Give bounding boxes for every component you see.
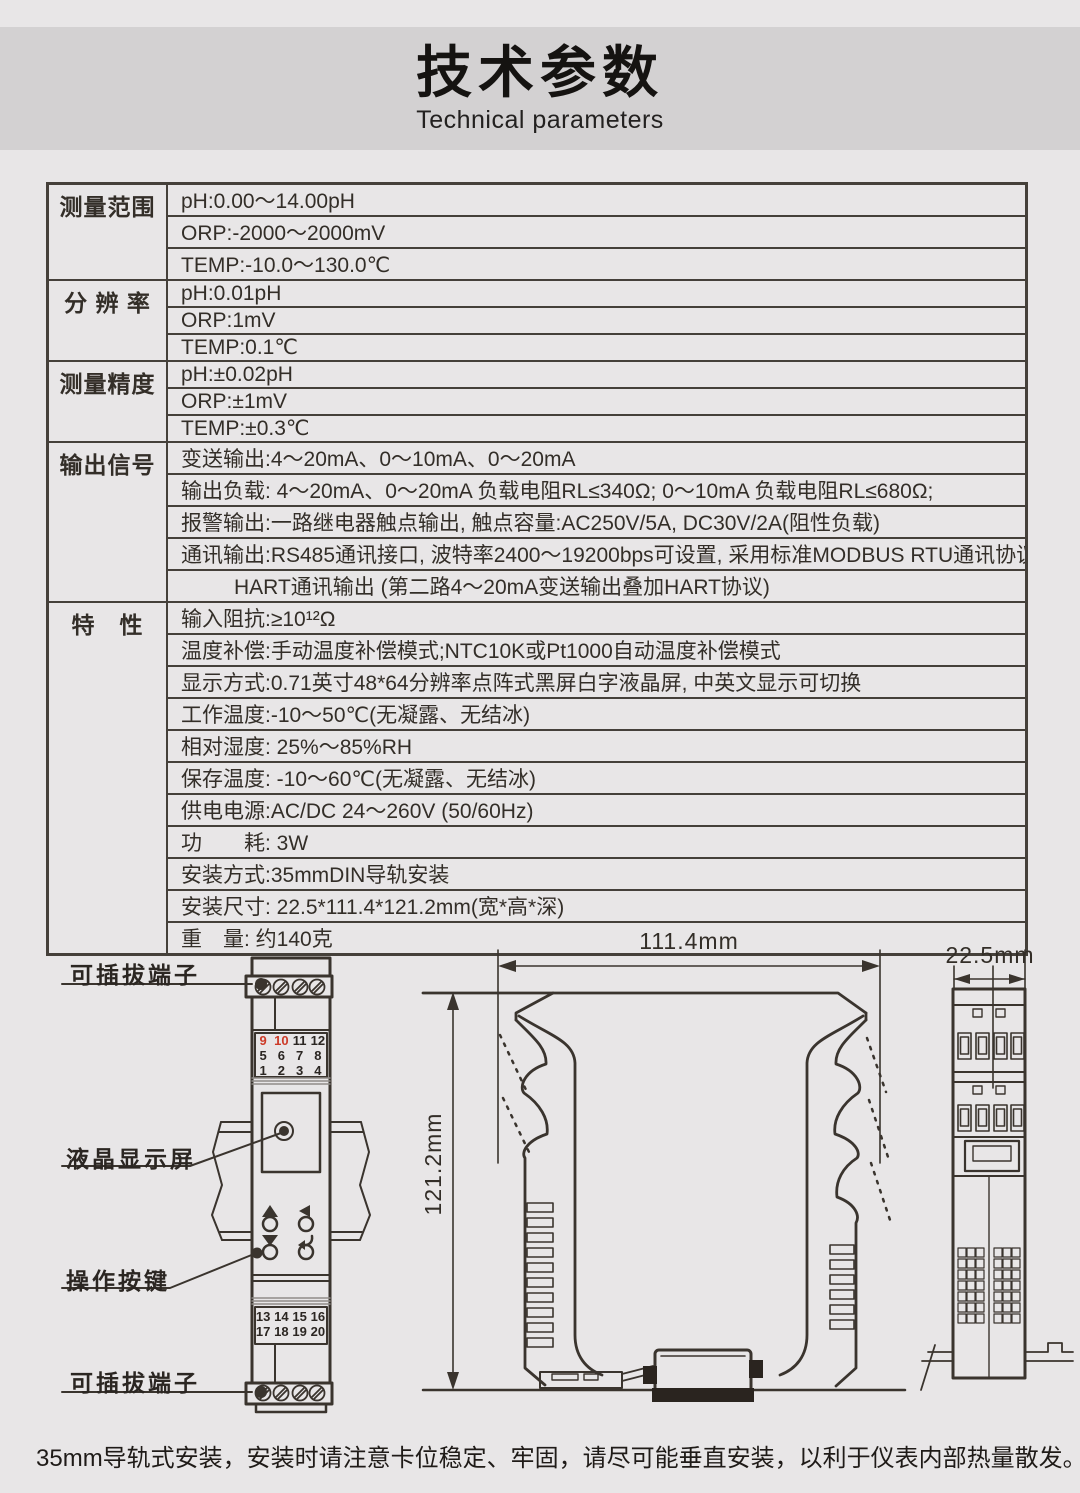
front-view-drawing: [62, 958, 370, 1412]
spec-group-label: 测量范围: [48, 184, 168, 281]
spec-row: ORP:-2000～2000mV: [48, 216, 1027, 248]
terminal-number: 14: [272, 1309, 290, 1324]
terminal-number: 8: [309, 1048, 327, 1063]
depth-dimension: 121.2mm: [420, 1078, 447, 1250]
spec-row: 安装尺寸: 22.5*111.4*121.2mm(宽*高*深): [48, 890, 1027, 922]
spec-value: 保存温度: -10～60℃(无凝露、无结冰): [167, 762, 1027, 794]
terminal-number: 17: [254, 1324, 272, 1339]
spec-value: 通讯输出:RS485通讯接口, 波特率2400～19200bps可设置, 采用标…: [167, 538, 1027, 570]
terminal-number: 12: [309, 1033, 327, 1048]
spec-row: 相对湿度: 25%～85%RH: [48, 730, 1027, 762]
spec-value: TEMP:-10.0～130.0℃: [167, 248, 1027, 280]
terminal-number: 4: [309, 1063, 327, 1078]
hatch-band: [252, 1298, 330, 1304]
right-scallop-edge: [835, 1020, 866, 1386]
spec-row: TEMP:-10.0～130.0℃: [48, 248, 1027, 280]
terminal-number: 20: [309, 1324, 327, 1339]
spec-row: 报警输出:一路继电器触点输出, 触点容量:AC250V/5A, DC30V/2A…: [48, 506, 1027, 538]
section-divider: [252, 997, 330, 1030]
bottom-cap: [256, 1404, 326, 1412]
terminal-number: 13: [254, 1309, 272, 1324]
spec-value: 输出负载: 4～20mA、0～20mA 负载电阻RL≤340Ω; 0～10mA …: [167, 474, 1027, 506]
spec-row: 显示方式:0.71英寸48*64分辨率点阵式黑屏白字液晶屏, 中英文显示可切换: [48, 666, 1027, 698]
terminal-number: 9: [254, 1033, 272, 1048]
spec-value: ORP:±1mV: [167, 388, 1027, 415]
spec-value: 安装尺寸: 22.5*111.4*121.2mm(宽*高*深): [167, 890, 1027, 922]
enter-button: [299, 1245, 313, 1259]
spec-row: TEMP:0.1℃: [48, 334, 1027, 361]
spec-row: 通讯输出:RS485通讯接口, 波特率2400～19200bps可设置, 采用标…: [48, 538, 1027, 570]
spec-row: 供电电源:AC/DC 24～260V (50/60Hz): [48, 794, 1027, 826]
top-cap: [252, 958, 330, 976]
din-rail-left: [212, 1122, 252, 1240]
spec-value: 相对湿度: 25%～85%RH: [167, 730, 1027, 762]
terminal-number: 19: [291, 1324, 309, 1339]
end-view-drawing: [921, 950, 1073, 1390]
width-dimension: 111.4mm: [629, 928, 749, 955]
arrowhead: [954, 974, 970, 984]
spec-row: 工作温度:-10～50℃(无凝露、无结冰): [48, 698, 1027, 730]
terminal-windows-row2: [958, 1105, 1024, 1131]
terminal-numbers-top: 910111256781234: [254, 1033, 327, 1078]
spec-value: ORP:-2000～2000mV: [167, 216, 1027, 248]
terminal-numbers-bottom: 1314151617181920: [254, 1309, 327, 1339]
spec-value: pH:0.01pH: [167, 280, 1027, 307]
terminal-number: 2: [272, 1063, 290, 1078]
spec-value: 温度补偿:手动温度补偿模式;NTC10K或Pt1000自动温度补偿模式: [167, 634, 1027, 666]
din-clip: [643, 1350, 763, 1402]
terminal-number: 1: [254, 1063, 272, 1078]
left-button: [299, 1217, 313, 1231]
spec-group-label: 分 辨 率: [48, 280, 168, 361]
spec-value: 功 耗: 3W: [167, 826, 1027, 858]
spec-row: 温度补偿:手动温度补偿模式;NTC10K或Pt1000自动温度补偿模式: [48, 634, 1027, 666]
terminal-number: 6: [272, 1048, 290, 1063]
spec-table: 测量范围pH:0.00～14.00pHORP:-2000～2000mVTEMP:…: [46, 182, 1028, 956]
spec-row: ORP:±1mV: [48, 388, 1027, 415]
terminal-number: 15: [291, 1309, 309, 1324]
spec-row: 安装方式:35mmDIN导轨安装: [48, 858, 1027, 890]
din-rail-right: [330, 1122, 370, 1240]
spec-row: 保存温度: -10～60℃(无凝露、无结冰): [48, 762, 1027, 794]
page-title: 技术参数: [416, 42, 664, 104]
lcd-dot-core: [279, 1126, 289, 1136]
technical-drawings: [0, 920, 1080, 1430]
spec-value: pH:±0.02pH: [167, 361, 1027, 388]
up-arrow-icon: [262, 1205, 278, 1217]
terminal-number: 11: [291, 1033, 309, 1048]
label-lcd: 液晶显示屏: [66, 1140, 196, 1174]
spec-row: 特 性输入阻抗:≥10¹²Ω: [48, 602, 1027, 634]
operation-buttons: [262, 1205, 313, 1259]
spec-value: TEMP:±0.3℃: [167, 415, 1027, 442]
hatch-band: [252, 1078, 330, 1084]
terminal-number: 10: [272, 1033, 290, 1048]
arrowhead: [498, 960, 516, 972]
extension-lines: [498, 950, 880, 1163]
spec-value: pH:0.00～14.00pH: [167, 184, 1027, 217]
left-arrow-icon: [299, 1205, 310, 1217]
title-band: 技术参数 Technical parameters: [0, 27, 1080, 150]
spec-group-label: 输出信号: [48, 442, 168, 602]
spec-row: 输出负载: 4～20mA、0～20mA 负载电阻RL≤340Ω; 0～10mA …: [48, 474, 1027, 506]
spec-value: HART通讯输出 (第二路4～20mA变送输出叠加HART协议): [167, 570, 1027, 602]
terminal-windows-row1: [958, 1033, 1024, 1059]
terminal-number: 18: [272, 1324, 290, 1339]
top-edge: [423, 993, 866, 1013]
label-buttons: 操作按键: [66, 1262, 170, 1296]
end-width-dimension: 22.5mm: [940, 942, 1040, 969]
spec-group-label: 测量精度: [48, 361, 168, 442]
terminal-number: 7: [291, 1048, 309, 1063]
spec-row: 输出信号变送输出:4～20mA、0～10mA、0～20mA: [48, 442, 1027, 474]
spec-row: TEMP:±0.3℃: [48, 415, 1027, 442]
spec-row: 功 耗: 3W: [48, 826, 1027, 858]
spec-row: 测量范围pH:0.00～14.00pH: [48, 184, 1027, 217]
spec-value: TEMP:0.1℃: [167, 334, 1027, 361]
footer-note: 35mm导轨式安装，安装时请注意卡位稳定、牢固，请尽可能垂直安装，以利于仪表内部…: [36, 1438, 1056, 1473]
extension-lines: [954, 950, 1025, 1088]
spec-value: 供电电源:AC/DC 24～260V (50/60Hz): [167, 794, 1027, 826]
terminal-number: 3: [291, 1063, 309, 1078]
down-button: [263, 1245, 277, 1259]
spec-value: 输入阻抗:≥10¹²Ω: [167, 602, 1027, 634]
arrowhead: [447, 992, 459, 1010]
spec-value: ORP:1mV: [167, 307, 1027, 334]
label-top-terminal: 可插拔端子: [70, 956, 200, 990]
spec-row: 分 辨 率pH:0.01pH: [48, 280, 1027, 307]
terminal-number: 16: [309, 1309, 327, 1324]
lcd-screen: [262, 1093, 320, 1172]
side-view-drawing: [423, 950, 905, 1402]
spec-value: 显示方式:0.71英寸48*64分辨率点阵式黑屏白字液晶屏, 中英文显示可切换: [167, 666, 1027, 698]
spec-row: HART通讯输出 (第二路4～20mA变送输出叠加HART协议): [48, 570, 1027, 602]
up-button: [263, 1217, 277, 1231]
terminal-number: 5: [254, 1048, 272, 1063]
label-bottom-terminal: 可插拔端子: [70, 1364, 200, 1398]
page: 技术参数 Technical parameters 测量范围pH:0.00～14…: [0, 0, 1080, 1493]
spec-value: 变送输出:4～20mA、0～10mA、0～20mA: [167, 442, 1027, 474]
spec-value: 安装方式:35mmDIN导轨安装: [167, 858, 1027, 890]
bottom-screws: [256, 1386, 325, 1401]
arrowhead: [862, 960, 880, 972]
arrowhead: [1009, 974, 1025, 984]
arrowhead: [447, 1372, 459, 1390]
spec-group-label: 特 性: [48, 602, 168, 955]
section-lines: [252, 1275, 330, 1281]
page-subtitle: Technical parameters: [416, 106, 664, 135]
spec-row: 测量精度pH:±0.02pH: [48, 361, 1027, 388]
spec-value: 报警输出:一路继电器触点输出, 触点容量:AC250V/5A, DC30V/2A…: [167, 506, 1027, 538]
break-dotted-lines: [500, 1035, 890, 1220]
spec-value: 工作温度:-10～50℃(无凝露、无结冰): [167, 698, 1027, 730]
spec-row: ORP:1mV: [48, 307, 1027, 334]
